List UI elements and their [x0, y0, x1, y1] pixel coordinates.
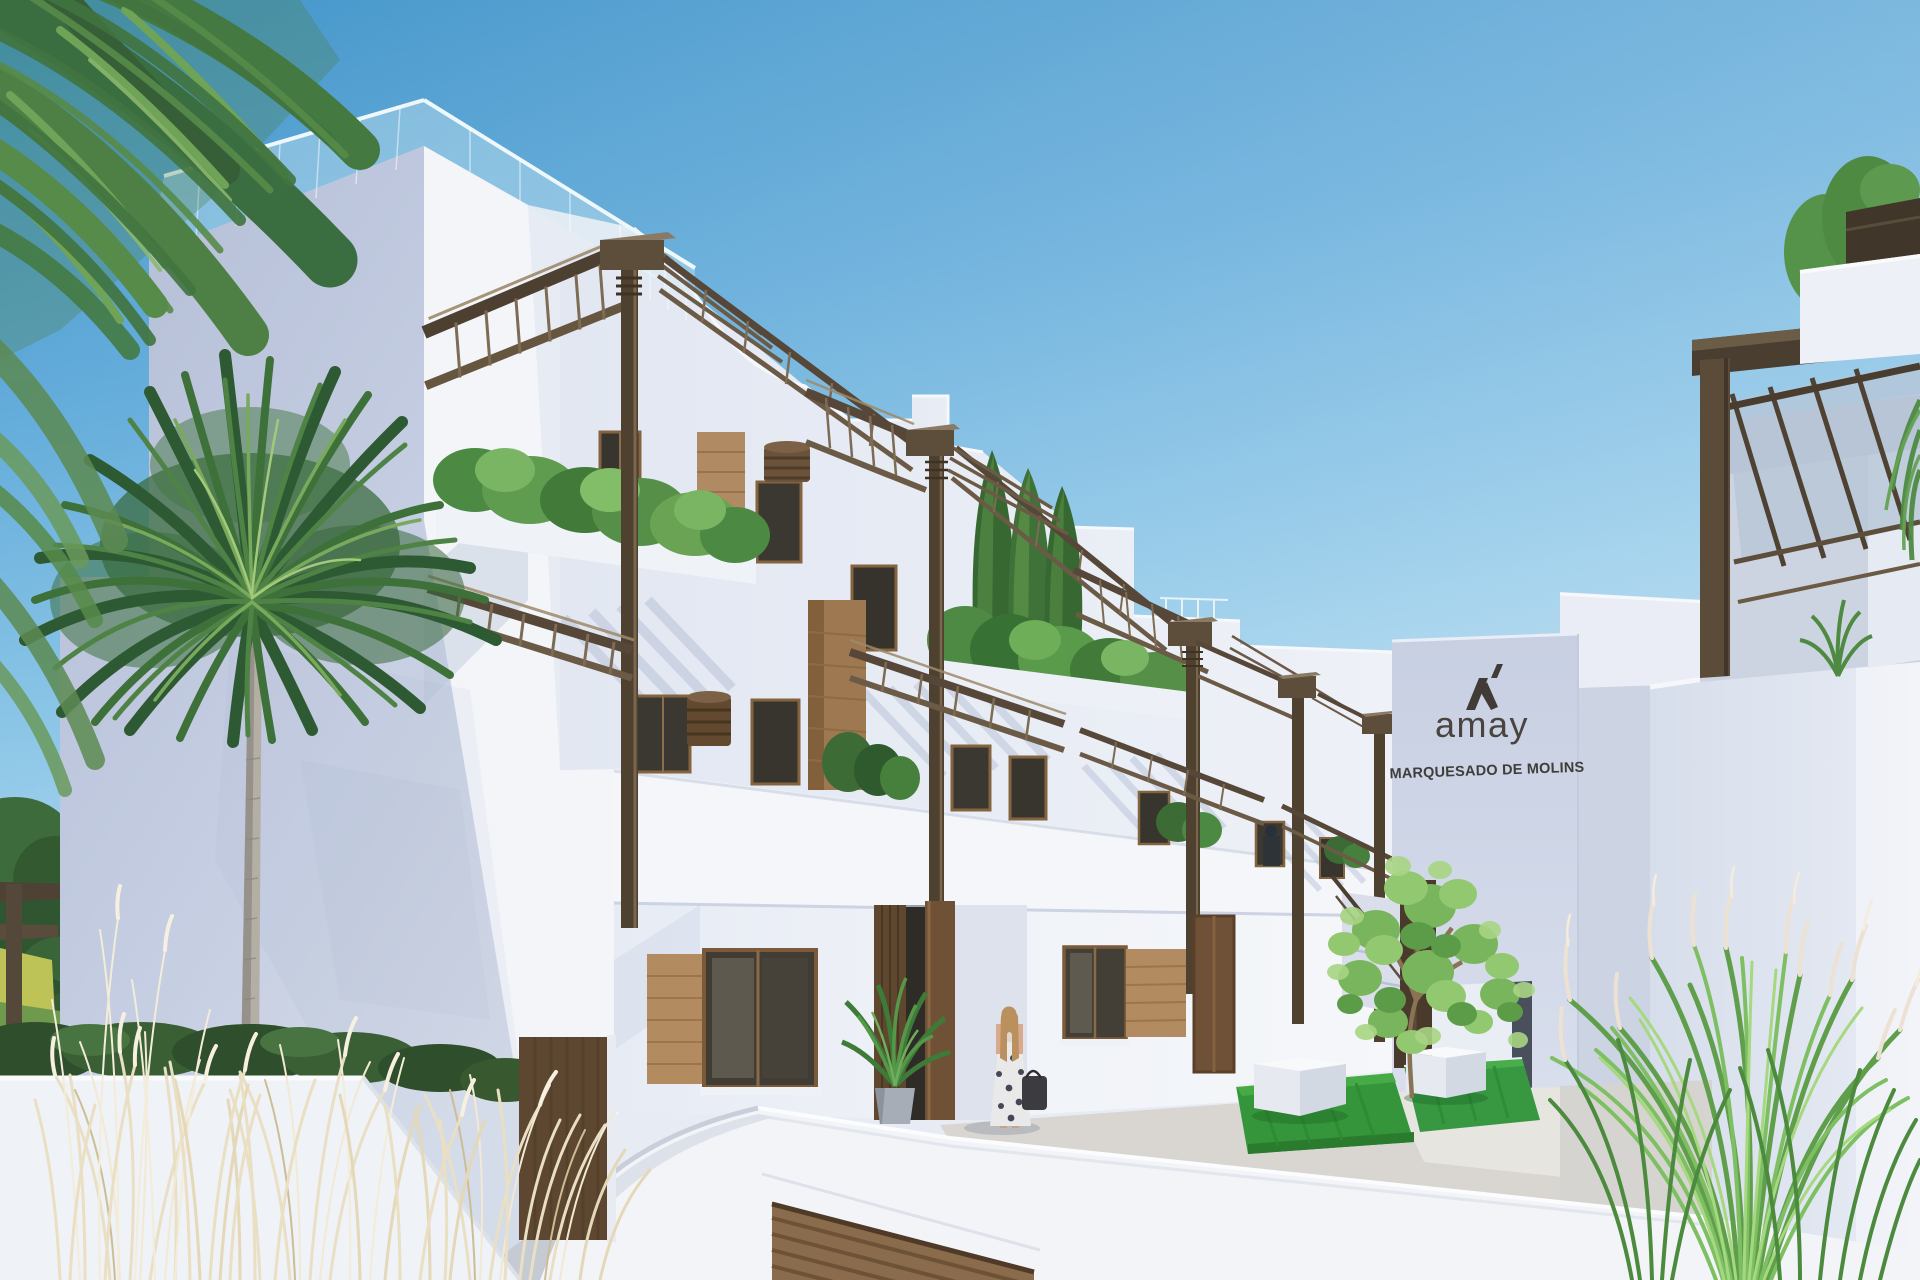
svg-text:amay: amay — [1435, 704, 1529, 745]
